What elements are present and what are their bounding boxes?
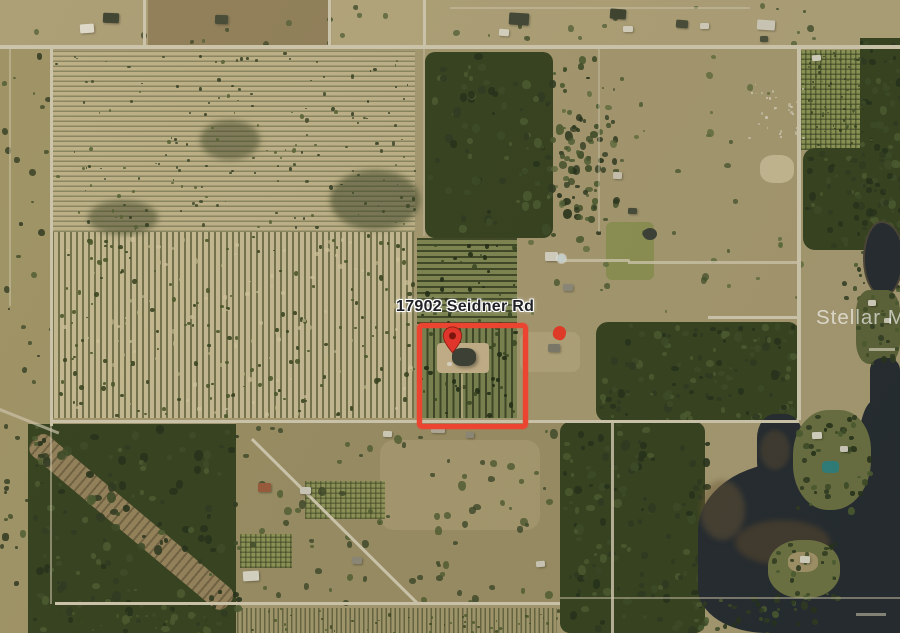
building-footprint <box>563 284 573 291</box>
satellite-map-image[interactable]: 17902 Seidner Rd Stellar MLS <box>0 0 900 633</box>
building-footprint <box>676 20 689 29</box>
building-footprint <box>509 12 530 25</box>
location-pin-icon[interactable] <box>442 326 463 354</box>
building-footprint <box>623 26 633 32</box>
building-footprint <box>610 8 627 19</box>
pool <box>557 254 566 263</box>
address-label: 17902 Seidner Rd <box>396 298 534 316</box>
building-footprint <box>800 556 810 563</box>
building-footprint <box>499 29 509 37</box>
building-layer <box>0 0 900 633</box>
building-footprint <box>840 446 848 452</box>
building-footprint <box>80 24 95 34</box>
building-footprint <box>760 36 768 42</box>
building-footprint <box>757 19 776 30</box>
pond <box>643 228 657 240</box>
building-footprint <box>243 571 260 582</box>
building-footprint <box>545 252 558 261</box>
dock-south <box>856 613 886 616</box>
watermark: Stellar MLS <box>816 306 900 330</box>
building-footprint <box>812 432 822 439</box>
building-footprint <box>812 55 821 62</box>
building-footprint <box>352 557 362 565</box>
building-footprint <box>700 23 709 29</box>
dock-north <box>869 348 895 351</box>
building-footprint <box>536 561 545 568</box>
building-footprint <box>548 344 560 352</box>
parcel-outline <box>417 323 528 429</box>
building-footprint <box>466 432 474 438</box>
building-footprint <box>258 483 271 492</box>
building-footprint <box>628 208 637 214</box>
building-footprint <box>613 172 622 179</box>
building-footprint <box>383 431 392 437</box>
building-footprint <box>103 13 119 24</box>
building-footprint <box>215 15 228 24</box>
building-footprint <box>300 487 311 494</box>
